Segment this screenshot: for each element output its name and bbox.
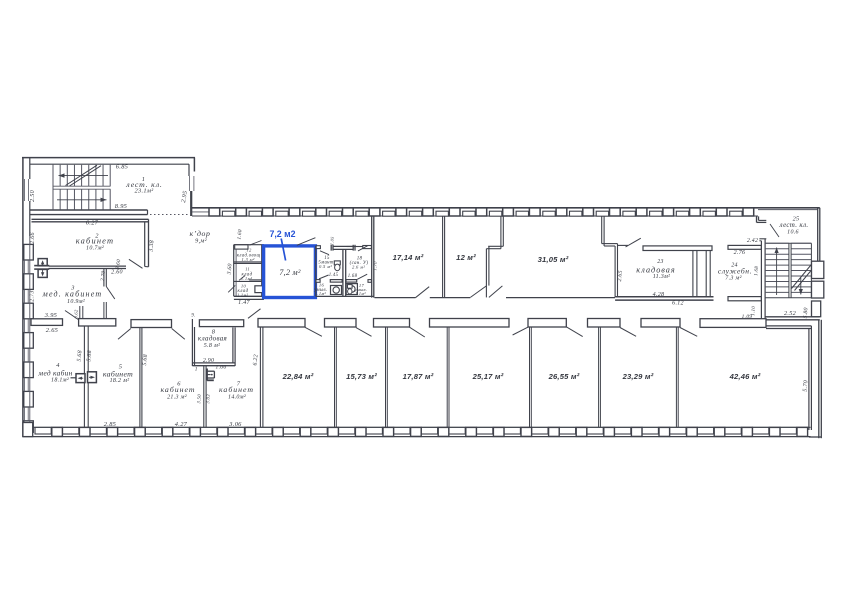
- svg-text:2.70: 2.70: [100, 270, 107, 281]
- svg-text:25,17 м²: 25,17 м²: [472, 372, 504, 381]
- svg-text:3.38: 3.38: [148, 240, 155, 253]
- svg-text:23,29 м²: 23,29 м²: [622, 372, 654, 381]
- svg-text:кабинет: кабинет: [76, 237, 115, 246]
- svg-text:2.85: 2.85: [104, 421, 116, 428]
- svg-text:10.6: 10.6: [787, 230, 799, 236]
- svg-text:4.28: 4.28: [653, 291, 665, 298]
- svg-text:2.90: 2.90: [203, 358, 214, 364]
- svg-text:0.62: 0.62: [74, 309, 79, 319]
- svg-text:7.3 м²: 7.3 м²: [725, 275, 741, 281]
- svg-text:кабинет: кабинет: [219, 385, 254, 394]
- svg-text:1.1м²: 1.1м²: [237, 293, 248, 298]
- svg-text:1.3 м²: 1.3 м²: [242, 257, 255, 262]
- svg-text:кладовая: кладовая: [198, 335, 227, 343]
- svg-text:мед. кабинет: мед. кабинет: [42, 290, 103, 299]
- svg-text:3.60: 3.60: [226, 263, 233, 275]
- svg-text:2.52: 2.52: [784, 310, 796, 317]
- svg-text:2.50: 2.50: [29, 189, 36, 202]
- svg-text:1.68: 1.68: [754, 266, 760, 277]
- svg-text:12 м²: 12 м²: [456, 253, 476, 262]
- svg-text:17,87 м²: 17,87 м²: [403, 372, 434, 381]
- svg-text:11.3м²: 11.3м²: [653, 274, 670, 280]
- svg-text:2.42: 2.42: [747, 237, 758, 244]
- svg-text:3.50: 3.50: [197, 394, 203, 404]
- svg-text:5.80: 5.80: [803, 307, 810, 318]
- svg-text:18.2 м²: 18.2 м²: [110, 378, 130, 384]
- svg-text:17,14 м²: 17,14 м²: [393, 253, 424, 262]
- svg-text:1.45: 1.45: [329, 273, 339, 278]
- svg-text:7,2 м²: 7,2 м²: [279, 268, 301, 277]
- svg-text:8.95: 8.95: [115, 203, 127, 210]
- svg-text:6.22: 6.22: [253, 354, 260, 366]
- svg-text:мед кабин: мед кабин: [37, 369, 72, 378]
- svg-text:18.1м²: 18.1м²: [51, 378, 69, 384]
- svg-text:10: 10: [241, 283, 247, 288]
- svg-text:21.3 м²: 21.3 м²: [167, 394, 187, 400]
- svg-text:5.68: 5.68: [86, 350, 93, 362]
- svg-text:42,46 м²: 42,46 м²: [729, 372, 761, 381]
- svg-text:5.8 м²: 5.8 м²: [204, 343, 220, 349]
- svg-text:15,73 м²: 15,73 м²: [346, 372, 377, 381]
- svg-text:23.1м²: 23.1м²: [135, 188, 154, 195]
- svg-text:1.1м²: 1.1м²: [355, 291, 366, 296]
- svg-text:лест. кл.: лест. кл.: [779, 221, 809, 229]
- svg-text:1.05: 1.05: [329, 236, 335, 246]
- svg-text:11: 11: [245, 267, 250, 272]
- svg-text:1.66: 1.66: [216, 364, 227, 370]
- svg-text:2.60: 2.60: [111, 270, 123, 276]
- svg-text:кабинет: кабинет: [160, 385, 195, 394]
- svg-text:3.06: 3.06: [228, 421, 242, 428]
- svg-text:4.27: 4.27: [175, 421, 188, 428]
- svg-text:7,2 м2: 7,2 м2: [269, 229, 295, 239]
- svg-text:26,55 м²: 26,55 м²: [548, 372, 580, 381]
- svg-text:1.60: 1.60: [237, 229, 244, 240]
- svg-text:1.47: 1.47: [238, 299, 250, 306]
- svg-text:1.68: 1.68: [348, 274, 358, 279]
- svg-text:5.68: 5.68: [77, 350, 84, 362]
- svg-text:2.66: 2.66: [30, 232, 36, 244]
- svg-text:16: 16: [319, 282, 325, 287]
- svg-text:3.95: 3.95: [44, 312, 57, 319]
- svg-text:6.85: 6.85: [116, 164, 128, 171]
- svg-text:1.1м²: 1.1м²: [241, 276, 253, 281]
- svg-text:6.12: 6.12: [672, 301, 684, 307]
- svg-text:2.76: 2.76: [734, 250, 746, 256]
- svg-text:1.1м²: 1.1м²: [315, 291, 326, 296]
- svg-text:23: 23: [657, 259, 663, 265]
- svg-text:5.68: 5.68: [142, 354, 149, 366]
- svg-text:22,84 м²: 22,84 м²: [282, 372, 314, 381]
- svg-text:9.: 9.: [191, 314, 195, 319]
- svg-text:0.5 м²: 0.5 м²: [319, 264, 332, 269]
- svg-text:10.9м²: 10.9м²: [67, 299, 85, 305]
- svg-text:1.70: 1.70: [372, 261, 378, 271]
- svg-text:2.73: 2.73: [30, 290, 36, 301]
- svg-text:1: 1: [195, 366, 198, 372]
- svg-text:31,05 м²: 31,05 м²: [538, 255, 569, 264]
- svg-text:9,м²: 9,м²: [195, 238, 207, 245]
- svg-text:10.7м²: 10.7м²: [86, 246, 104, 252]
- svg-text:2.6 м²: 2.6 м²: [352, 264, 365, 269]
- svg-text:2.65: 2.65: [617, 270, 624, 282]
- svg-text:14.0м²: 14.0м²: [228, 393, 246, 400]
- svg-text:3.03: 3.03: [206, 394, 212, 404]
- svg-text:6.27: 6.27: [86, 220, 99, 227]
- svg-text:2.65: 2.65: [46, 327, 58, 334]
- svg-text:12: 12: [246, 248, 252, 253]
- svg-text:служебн.: служебн.: [718, 266, 752, 275]
- svg-text:5.70: 5.70: [803, 380, 810, 392]
